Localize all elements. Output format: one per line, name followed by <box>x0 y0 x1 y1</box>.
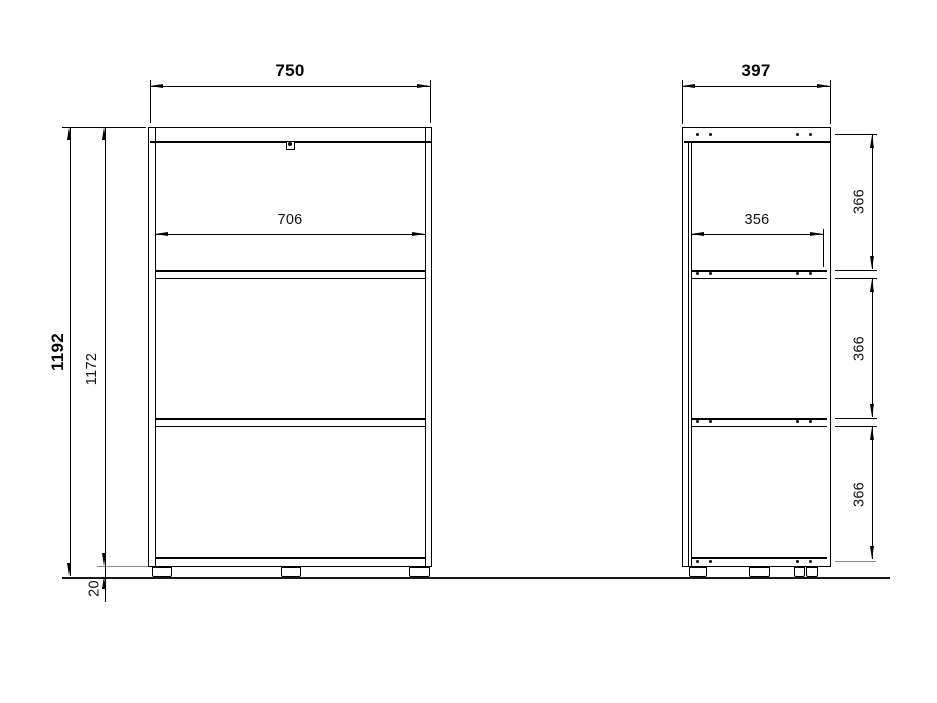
dim-compartment-height-label: 366 <box>852 464 867 524</box>
screw-hole <box>809 133 812 136</box>
arrowhead <box>417 84 430 88</box>
arrowhead <box>155 232 168 236</box>
arrowhead <box>870 135 874 148</box>
dimension-line <box>682 86 830 87</box>
dim-compartment-height-label: 366 <box>852 171 867 231</box>
dim-overall-height-label: 1192 <box>48 322 64 382</box>
technical-drawing-canvas: 750 397 706 356 1192 1172 20 366 366 <box>0 0 937 703</box>
front-view-outline <box>148 127 432 567</box>
screw-hole <box>709 272 712 275</box>
screw-hole <box>796 420 799 423</box>
foot <box>794 567 805 577</box>
arrowhead <box>102 576 106 589</box>
arrowhead <box>67 563 71 576</box>
side-back-panel-line <box>688 141 689 566</box>
screw-hole <box>696 420 699 423</box>
screw-hole <box>696 133 699 136</box>
arrowhead <box>102 553 106 566</box>
shelf-line <box>156 278 425 280</box>
shelf-line <box>692 418 827 420</box>
foot <box>152 567 172 577</box>
screw-hole <box>709 133 712 136</box>
dimension-line <box>872 135 873 269</box>
screw-hole <box>796 560 799 563</box>
side-top-panel-line <box>684 141 830 143</box>
dim-side-overall-depth-label: 397 <box>721 61 791 81</box>
dim-carcass-height-label: 1172 <box>84 339 100 399</box>
screw-hole <box>709 560 712 563</box>
screw-hole <box>696 560 699 563</box>
shelf-line <box>156 418 425 420</box>
ground-line <box>62 577 890 580</box>
extension-line <box>835 561 876 562</box>
arrowhead <box>102 127 106 140</box>
arrowhead <box>691 232 704 236</box>
arrowhead <box>870 404 874 417</box>
screw-hole <box>809 560 812 563</box>
shelf-line <box>156 270 425 272</box>
arrowhead <box>870 279 874 292</box>
dimension-line <box>70 127 71 576</box>
side-view-outline <box>682 127 831 567</box>
side-back-panel-line <box>691 141 692 566</box>
dimension-line <box>872 279 873 417</box>
arrowhead <box>817 84 830 88</box>
arrowhead <box>870 427 874 440</box>
front-left-wall-inner-line <box>155 128 156 566</box>
shelf-line <box>156 426 425 428</box>
dim-compartment-height-label: 366 <box>852 318 867 378</box>
extension-line <box>835 270 877 271</box>
foot <box>806 567 818 577</box>
shelf-line <box>692 278 827 280</box>
shelf-line <box>692 270 827 272</box>
dim-plinth-height-label: 20 <box>87 569 102 609</box>
arrowhead <box>150 84 163 88</box>
front-bottom-panel-line <box>156 557 425 559</box>
hanging-fitting-dot <box>288 142 292 146</box>
arrowhead <box>870 546 874 559</box>
foot <box>689 567 707 577</box>
dim-side-inner-depth-label: 356 <box>722 212 792 228</box>
screw-hole <box>709 420 712 423</box>
side-bottom-panel-line <box>692 557 827 559</box>
dimension-line <box>105 127 106 566</box>
foot <box>281 567 301 577</box>
foot <box>749 567 770 577</box>
screw-hole <box>809 272 812 275</box>
arrowhead <box>682 84 695 88</box>
dim-front-overall-width-label: 750 <box>255 61 325 81</box>
screw-hole <box>809 420 812 423</box>
shelf-line <box>692 426 827 428</box>
dim-front-inner-width-label: 706 <box>255 212 325 228</box>
screw-hole <box>796 133 799 136</box>
dimension-line <box>150 86 430 87</box>
foot <box>409 567 430 577</box>
arrowhead <box>810 232 823 236</box>
dimension-line <box>872 427 873 559</box>
screw-hole <box>796 272 799 275</box>
arrowhead <box>67 127 71 140</box>
dimension-line <box>691 234 823 235</box>
screw-hole <box>696 272 699 275</box>
arrowhead <box>870 256 874 269</box>
arrowhead <box>412 232 425 236</box>
front-right-wall-inner-line <box>425 128 426 566</box>
dimension-line <box>155 234 425 235</box>
extension-line <box>835 418 877 419</box>
